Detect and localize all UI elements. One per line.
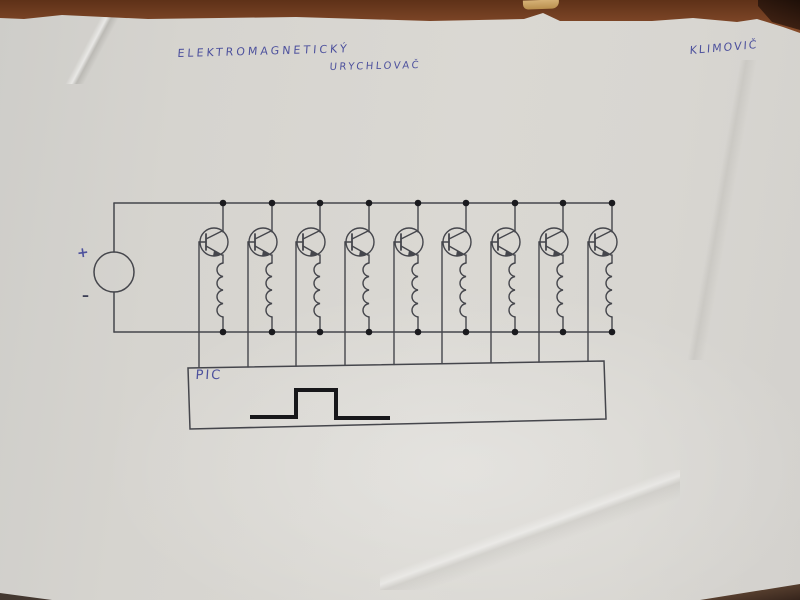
coil-inductor xyxy=(217,263,223,317)
transistor-collector-stroke xyxy=(498,231,514,239)
junction-dot xyxy=(220,200,227,207)
junction-dot xyxy=(609,200,616,207)
coil-inductor xyxy=(363,263,369,317)
transistor-collector-stroke xyxy=(206,231,222,239)
coil-inductor xyxy=(606,263,612,317)
junction-dot xyxy=(512,329,519,336)
junction-dot xyxy=(317,329,324,336)
coil-inductor xyxy=(314,263,320,317)
junction-dot xyxy=(220,329,227,336)
transistor-collector-stroke xyxy=(401,231,417,239)
clock-pulse-waveform xyxy=(252,390,388,418)
coil-inductor xyxy=(557,263,563,317)
coil-inductor xyxy=(412,263,418,317)
junction-dot xyxy=(463,329,470,336)
transistor-collector-stroke xyxy=(449,231,465,239)
photo-of-circuit-sketch: ELEKTROMAGNETICKÝ URYCHLOVAČ KLIMOVIČ PI… xyxy=(0,0,800,600)
junction-dot xyxy=(560,329,567,336)
circuit-svg xyxy=(0,0,800,600)
source-minus-sign: – xyxy=(82,288,89,304)
junction-dot xyxy=(463,200,470,207)
coil-inductor xyxy=(266,263,272,317)
coil-inductor xyxy=(460,263,466,317)
junction-dot xyxy=(366,200,373,207)
junction-dot xyxy=(415,329,422,336)
transistor-collector-stroke xyxy=(546,231,562,239)
junction-dot xyxy=(415,200,422,207)
junction-dot xyxy=(560,200,567,207)
junction-dot xyxy=(366,329,373,336)
voltage-source xyxy=(94,252,134,292)
transistor-collector-stroke xyxy=(303,231,319,239)
junction-dot xyxy=(609,329,616,336)
title-line2: URYCHLOVAČ xyxy=(329,60,421,73)
transistor-collector-stroke xyxy=(255,231,271,239)
pic-box-label: PIC xyxy=(195,368,223,383)
junction-dot xyxy=(317,200,324,207)
transistor-collector-stroke xyxy=(352,231,368,239)
junction-dot xyxy=(269,329,276,336)
junction-dot xyxy=(269,200,276,207)
coil-inductor xyxy=(509,263,515,317)
junction-dot xyxy=(512,200,519,207)
transistor-collector-stroke xyxy=(595,231,611,239)
source-plus-sign: + xyxy=(76,244,90,261)
